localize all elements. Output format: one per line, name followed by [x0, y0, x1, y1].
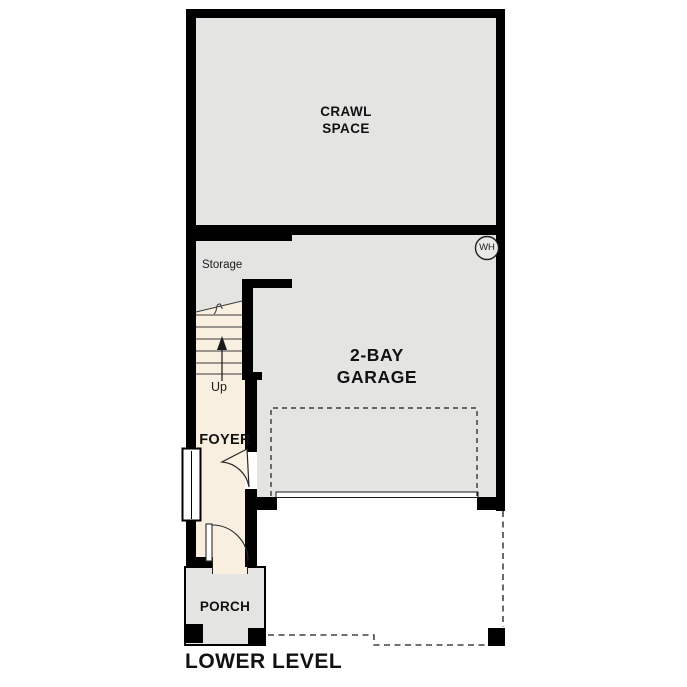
crawl-space-label: CRAWL SPACE — [320, 104, 372, 138]
wall-stair-right — [242, 288, 253, 378]
stairs-up-label: Up — [211, 380, 227, 396]
wall-left-lower — [186, 520, 196, 567]
wall-garage-front-right — [477, 497, 505, 510]
stairwell-floor — [196, 288, 242, 378]
wall-stair-top — [242, 279, 292, 288]
front-door-threshold — [212, 557, 248, 574]
wall-top — [186, 9, 505, 18]
water-heater-label: WH — [479, 242, 495, 254]
wall-foyer-bottom-stub — [196, 557, 212, 567]
plan-title: LOWER LEVEL — [185, 649, 342, 675]
wall-crawl-bottom-left — [186, 225, 292, 241]
porch-post-right — [248, 628, 265, 646]
driveway-post-right — [488, 628, 505, 646]
driveway-outline-dashed — [268, 511, 503, 645]
garage-label: 2-BAY GARAGE — [337, 345, 417, 389]
porch-label: PORCH — [200, 599, 250, 616]
storage-label: Storage — [202, 258, 242, 272]
wall-garage-front-left — [257, 497, 277, 510]
porch-post-left — [186, 624, 203, 643]
room-foyer — [196, 378, 245, 567]
wall-foyer-right-lower — [245, 488, 257, 567]
floor-plan: CRAWL SPACE Storage 2-BAY GARAGE Up FOYE… — [0, 0, 687, 687]
foyer-label: FOYER — [199, 431, 250, 449]
wall-right — [496, 9, 505, 511]
